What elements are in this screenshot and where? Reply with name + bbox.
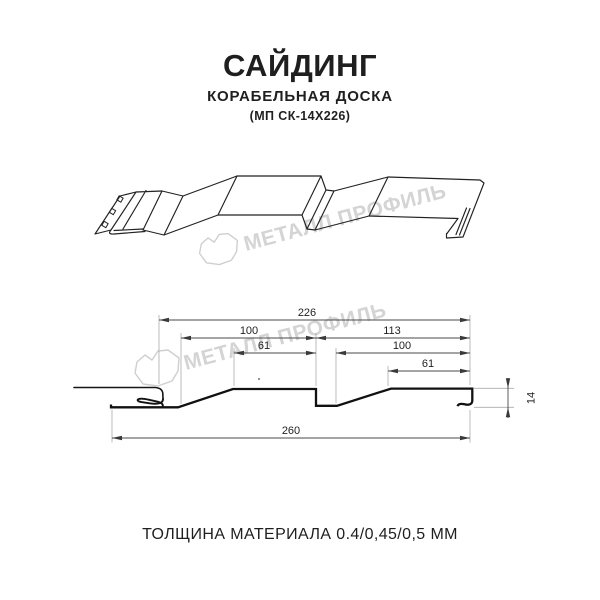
dim-label-100-right: 100 bbox=[393, 340, 411, 352]
section-lock-seam bbox=[138, 399, 163, 406]
dim-label-226: 226 bbox=[298, 307, 316, 319]
metal-profil-logo-icon bbox=[135, 350, 179, 386]
dim-label-14: 14 bbox=[526, 392, 538, 404]
dim-label-100-left: 100 bbox=[240, 325, 258, 337]
technical-drawing: МЕТАЛЛ ПРОФИЛЬ МЕТАЛЛ ПРОФИЛЬ bbox=[0, 0, 600, 600]
watermark-text: МЕТАЛЛ ПРОФИЛЬ bbox=[181, 299, 389, 375]
dim-label-260: 260 bbox=[282, 425, 300, 437]
stray-dot bbox=[258, 378, 260, 380]
profile-cross-section bbox=[74, 378, 472, 407]
thickness-note: ТОЛЩИНА МАТЕРИАЛА 0.4/0,45/0,5 ММ bbox=[0, 526, 600, 544]
product-drawing-page: САЙДИНГ КОРАБЕЛЬНАЯ ДОСКА (МП СК-14Х226)… bbox=[0, 0, 600, 600]
section-profile-outline bbox=[111, 389, 472, 408]
adjacent-panel-edge bbox=[74, 388, 163, 400]
dim-label-113: 113 bbox=[383, 325, 401, 337]
dim-label-61-left: 61 bbox=[258, 340, 270, 352]
metal-profil-logo-icon bbox=[200, 234, 238, 265]
dim-label-61-right: 61 bbox=[422, 358, 434, 370]
